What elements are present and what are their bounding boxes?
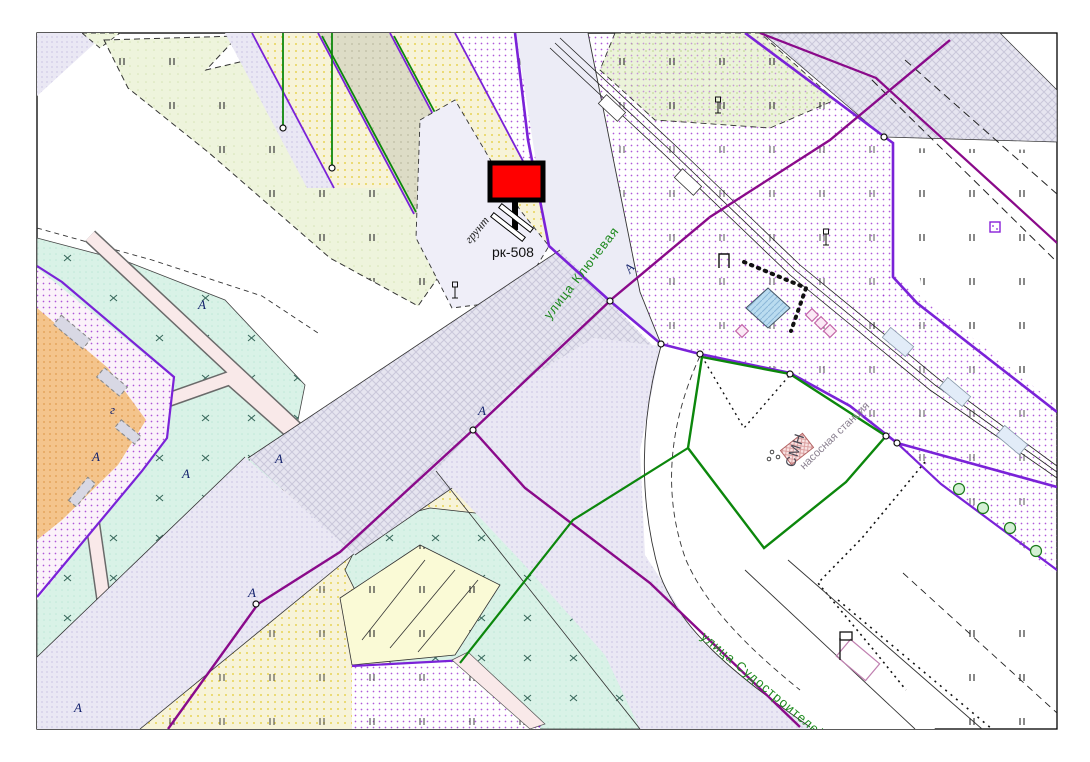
billboard-panel (490, 163, 543, 200)
svg-text:А: А (274, 451, 283, 466)
svg-text:А: А (247, 585, 256, 600)
map-viewport[interactable]: грунт рк-508 улица Ключевая улица Судост… (0, 0, 1090, 762)
billboard-code-label: рк-508 (492, 244, 534, 260)
svg-text:А: А (181, 466, 190, 481)
svg-text:А: А (91, 449, 100, 464)
svg-text:А: А (477, 403, 486, 418)
svg-text:А: А (197, 297, 206, 312)
map-canvas[interactable]: грунт рк-508 улица Ключевая улица Судост… (0, 0, 1090, 762)
svg-text:А: А (73, 700, 82, 715)
building-letter: г (110, 402, 115, 417)
